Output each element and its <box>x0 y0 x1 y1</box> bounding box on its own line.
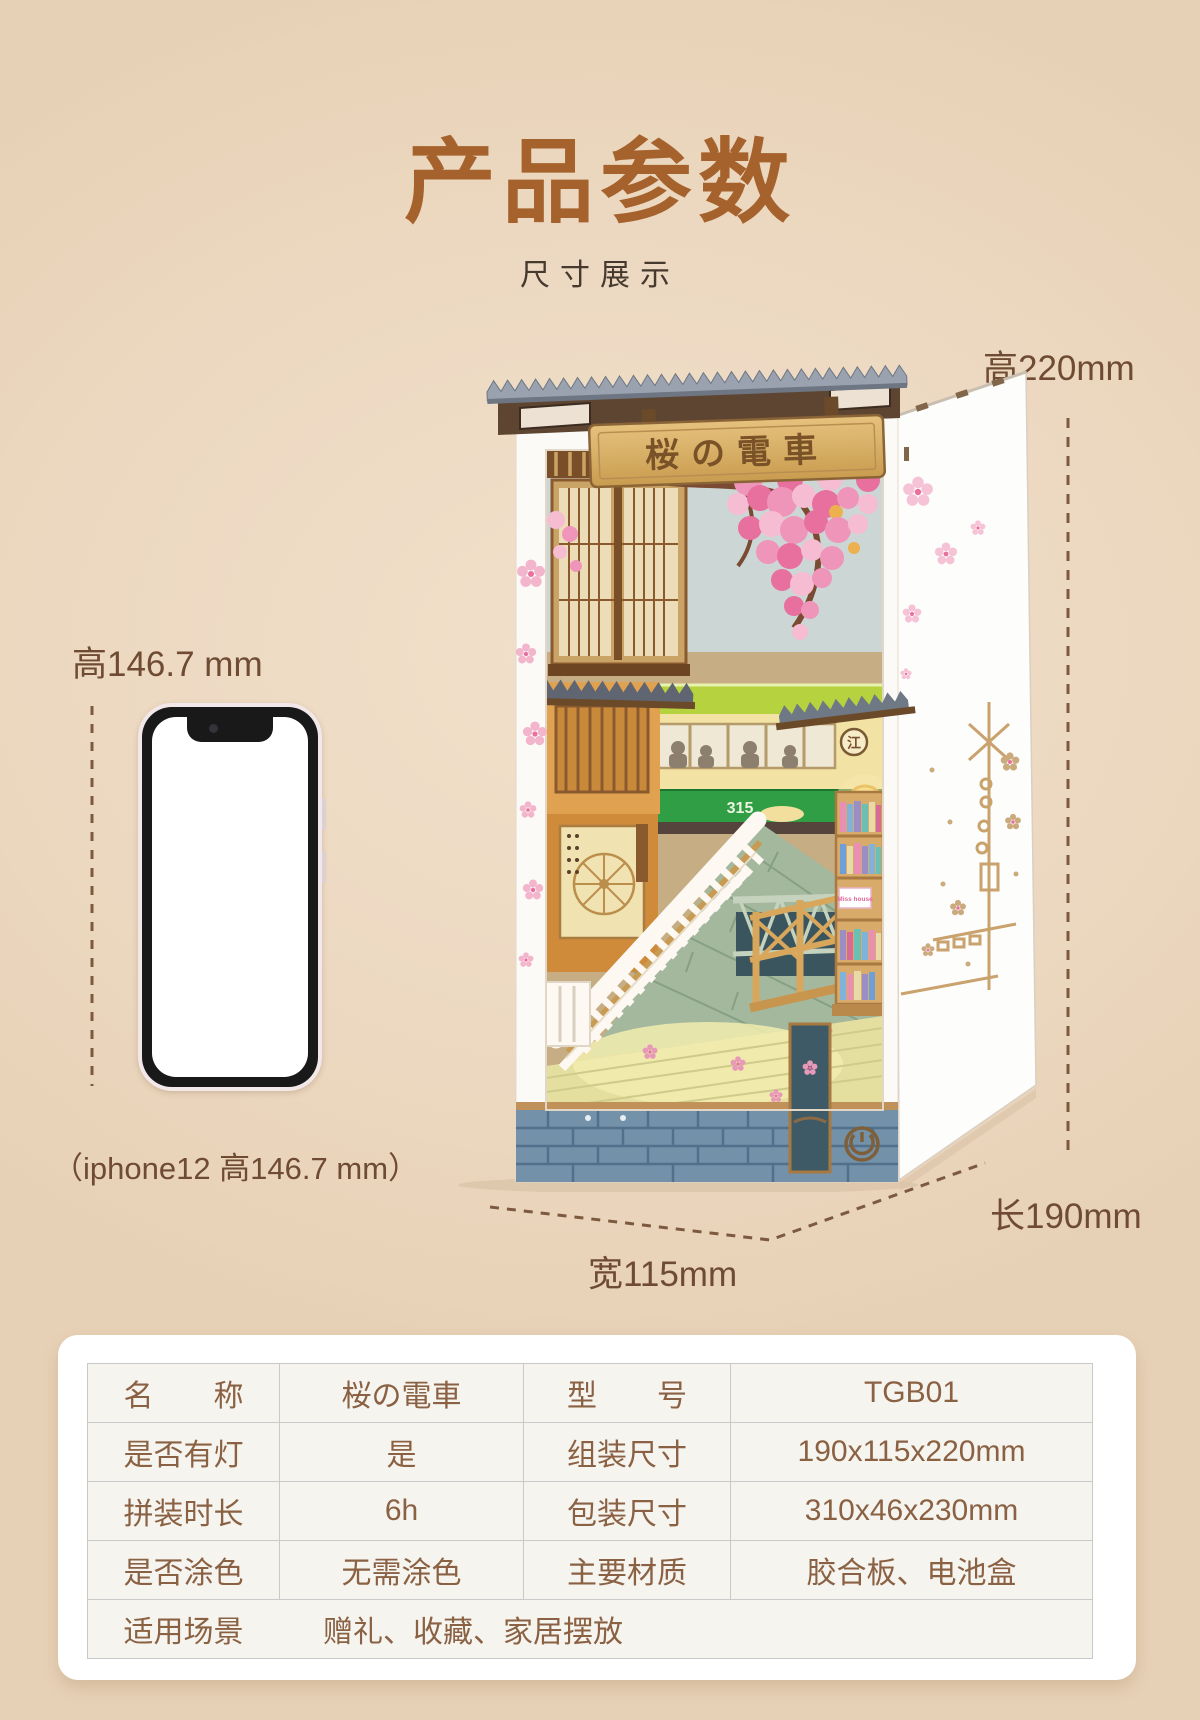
spec-label: 适用场景 <box>88 1607 279 1651</box>
width-dimension-label: 宽115mm <box>588 1246 737 1297</box>
lattice-window <box>548 480 690 676</box>
table-row: 拼装时长 6h 包装尺寸 310x46x230mm <box>88 1482 1093 1541</box>
length-dimension-label: 长190mm <box>990 1188 1142 1239</box>
spec-value: 胶合板、电池盒 <box>731 1541 1093 1600</box>
spec-label: 名 称 <box>88 1364 280 1423</box>
interior-scene: 江 315 <box>539 450 895 1112</box>
spec-value: 赠礼、收藏、家居摆放 <box>323 1607 623 1651</box>
phone-screen <box>152 717 308 1077</box>
phone-illustration <box>138 703 322 1091</box>
phone-height-label: 高146.7 mm <box>72 636 263 687</box>
phone-bezel <box>142 707 318 1087</box>
phone-side-button <box>322 798 326 830</box>
table-row: 是否涂色 无需涂色 主要材质 胶合板、电池盒 <box>88 1541 1093 1600</box>
spec-value: 桜の電車 <box>280 1364 524 1423</box>
spec-span-cell: 适用场景 赠礼、收藏、家居摆放 <box>88 1600 1093 1659</box>
shop-sign-text: 桜の電車 <box>644 431 829 475</box>
spec-label: 是否涂色 <box>88 1541 280 1600</box>
table-row: 名 称 桜の電車 型 号 TGB01 <box>88 1364 1093 1423</box>
spec-value: 无需涂色 <box>280 1541 524 1600</box>
spec-value: 310x46x230mm <box>731 1482 1093 1541</box>
phone-caption: （iphone12 高146.7 mm） <box>52 1143 419 1188</box>
spec-value: 是 <box>280 1423 524 1482</box>
bookshelf-card-label: Miss house <box>837 896 873 903</box>
phone-side-button <box>322 851 326 883</box>
spec-label: 包装尺寸 <box>524 1482 731 1541</box>
base-cutout-window <box>790 1024 830 1172</box>
side-panel <box>896 372 1036 1180</box>
phone-notch <box>187 716 273 742</box>
table-row: 是否有灯 是 组装尺寸 190x115x220mm <box>88 1423 1093 1482</box>
left-awning <box>539 679 696 709</box>
table-row: 适用场景 赠礼、收藏、家居摆放 <box>88 1600 1093 1659</box>
tram-number: 315 <box>727 800 754 817</box>
spec-value: TGB01 <box>731 1364 1093 1423</box>
spec-label: 拼装时长 <box>88 1482 280 1541</box>
spec-value: 6h <box>280 1482 524 1541</box>
spec-label: 组装尺寸 <box>524 1423 731 1482</box>
bookshelf: Miss house <box>832 792 888 1016</box>
spec-label: 是否有灯 <box>88 1423 280 1482</box>
spec-label: 型 号 <box>524 1364 731 1423</box>
book-nook-illustration: 江 315 <box>438 352 1048 1192</box>
tram-badge: 江 <box>847 735 861 751</box>
product-spec-page: 产品参数 尺寸展示 高220mm 长190mm 宽115mm 高146.7 mm… <box>0 0 1200 1720</box>
spec-value: 190x115x220mm <box>731 1423 1093 1482</box>
page-subtitle: 尺寸展示 <box>0 250 1200 294</box>
spec-label: 主要材质 <box>524 1541 731 1600</box>
phone-camera-dot <box>209 724 218 733</box>
spec-table: 名 称 桜の電車 型 号 TGB01 是否有灯 是 组装尺寸 190x115x2… <box>87 1363 1093 1659</box>
page-title: 产品参数 <box>0 108 1200 241</box>
